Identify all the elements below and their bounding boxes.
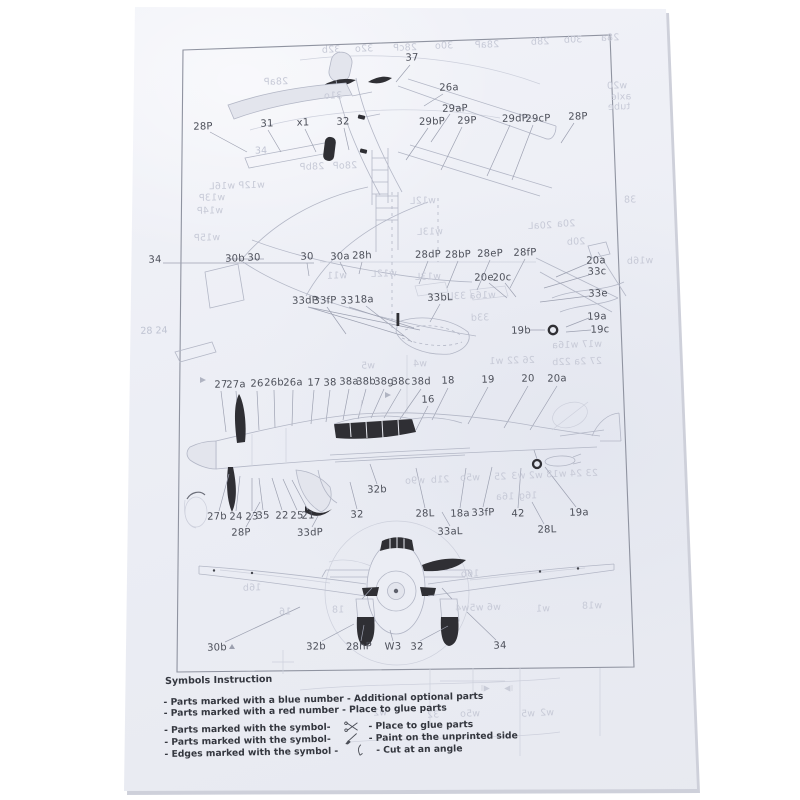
part-label: 28L xyxy=(415,508,434,520)
part-label: 28P xyxy=(193,121,213,133)
brush-icon xyxy=(343,732,361,744)
part-label: 22 xyxy=(275,510,288,521)
symbols-instruction-legend: Symbols Instruction - Parts marked with … xyxy=(163,668,605,760)
part-label: 28eP xyxy=(477,248,503,260)
part-label: 33aL xyxy=(437,526,463,538)
part-label: 32 xyxy=(410,641,423,652)
part-label: 35 xyxy=(256,510,269,521)
part-label: 28h xyxy=(352,250,372,262)
part-label: 26 xyxy=(250,378,263,389)
part-label: 28L xyxy=(537,524,556,536)
part-label: 26a xyxy=(439,82,459,94)
part-label: 24 xyxy=(229,511,242,522)
part-label: 38c xyxy=(391,376,410,388)
part-label: 26b xyxy=(264,377,284,389)
part-label: 33 xyxy=(340,295,353,306)
part-label: 28P xyxy=(568,111,588,123)
part-label: 28fP xyxy=(513,247,536,259)
part-label: 28hP xyxy=(346,641,372,653)
part-label: 33fP xyxy=(313,295,336,307)
part-label: 38b xyxy=(356,376,376,388)
part-label: 29aP xyxy=(442,103,468,115)
knife-icon xyxy=(350,744,368,756)
part-label: 33c xyxy=(587,266,606,278)
legend-text: - Cut at an angle xyxy=(376,743,463,756)
part-label: 38 xyxy=(323,377,336,388)
part-label: 34 xyxy=(493,640,506,651)
part-label: 31 xyxy=(260,118,273,129)
part-label: 33bL xyxy=(427,292,453,304)
part-label: 37 xyxy=(405,52,418,63)
part-label: 29bP xyxy=(419,116,445,128)
part-label: 18 xyxy=(441,375,454,386)
part-label: 33fP xyxy=(471,507,494,519)
part-label: 30a xyxy=(330,251,350,263)
part-label: 29P xyxy=(457,115,477,127)
part-label: 18a xyxy=(450,508,470,520)
part-label: 28P xyxy=(231,527,251,539)
part-label: 30b xyxy=(225,253,245,265)
part-label: 32b xyxy=(367,484,387,496)
part-label: 20a xyxy=(547,373,567,385)
part-label: 18a xyxy=(354,294,374,306)
part-label: 34 xyxy=(148,254,161,265)
part-label: 32b xyxy=(306,641,326,653)
part-label: 28bP xyxy=(445,249,471,261)
part-label: W3 xyxy=(385,641,402,652)
part-label: 27b xyxy=(207,511,227,523)
part-label: x1 xyxy=(296,117,309,128)
part-label: 26a xyxy=(283,377,303,389)
part-label: 19 xyxy=(481,374,494,385)
part-label: 20a xyxy=(586,255,606,267)
part-label: 33e xyxy=(588,288,608,300)
photo-of-instruction-sheet: 32b32o28cP30o28aP28b30b28a28aP31ow20axle… xyxy=(0,0,800,800)
part-label: 20e xyxy=(474,272,494,284)
part-label: 29cP xyxy=(525,113,550,125)
part-label: 27a xyxy=(226,379,246,391)
part-label: 19b xyxy=(511,325,531,337)
part-label: 30 xyxy=(247,252,260,263)
part-label: 42 xyxy=(511,508,524,519)
part-label: 32 xyxy=(336,116,349,127)
part-label: 29dP xyxy=(502,113,528,125)
part-label: 30b xyxy=(207,642,227,654)
part-label: 20 xyxy=(521,373,534,384)
part-label: 33dP xyxy=(297,527,323,539)
part-label: 28dP xyxy=(415,249,441,261)
part-label: 32 xyxy=(350,509,363,520)
part-label: 16 xyxy=(421,394,434,405)
part-label: 20c xyxy=(492,272,511,284)
part-label: 19a xyxy=(569,507,589,519)
part-label: 17 xyxy=(307,377,320,388)
part-label: 30 xyxy=(300,251,313,262)
part-label: 38d xyxy=(411,376,431,388)
part-label: 21 xyxy=(301,510,314,521)
part-label: 19c xyxy=(590,324,609,336)
part-label: 19a xyxy=(587,311,607,323)
scissors-icon xyxy=(342,721,360,732)
